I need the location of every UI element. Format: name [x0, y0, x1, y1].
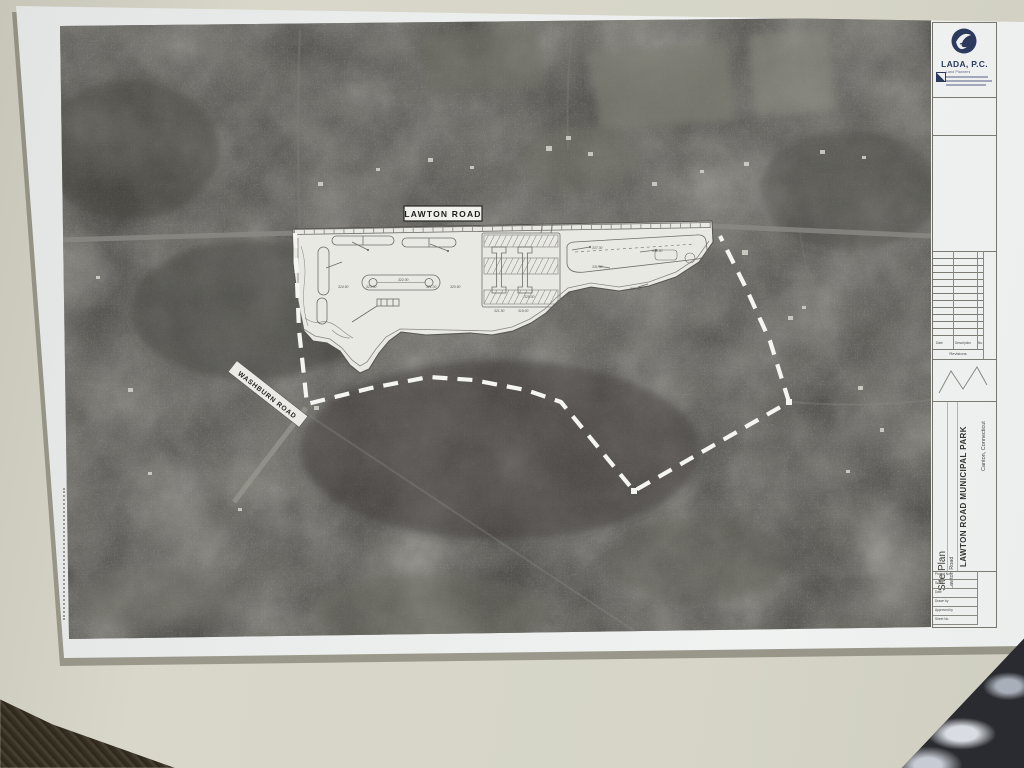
carpet-corner	[0, 664, 175, 768]
svg-text:334.50: 334.50	[652, 249, 662, 253]
info-scale: Scale	[933, 580, 977, 589]
svg-text:320.50: 320.50	[450, 285, 460, 289]
info-date: Date	[933, 589, 977, 598]
svg-text:331.00: 331.00	[592, 265, 602, 269]
svg-text:323.00: 323.00	[366, 285, 376, 289]
firm-name: LADA, P.C.	[933, 59, 996, 69]
photo-of-site-plan: { "scene": { "background_color": "#d6d5c…	[0, 0, 1024, 768]
margin-fine-print	[63, 488, 65, 620]
firm-address-line	[946, 80, 992, 82]
firm-square-icon	[936, 72, 946, 82]
lada-logo-icon	[950, 27, 978, 55]
svg-text:LAWTON ROAD: LAWTON ROAD	[404, 209, 481, 219]
title-block: LADA, P.C. Land Planners Date Descriptio…	[932, 22, 997, 628]
seal-signature-line	[937, 363, 991, 399]
info-drawn-by: Drawn by	[933, 598, 977, 607]
rev-col-no: No.	[978, 341, 983, 345]
info-approved-by: Approved by	[933, 607, 977, 616]
svg-text:337.00: 337.00	[592, 246, 602, 250]
rev-col-date: Date	[936, 341, 943, 345]
fabric-object	[894, 636, 1024, 768]
rev-col-description: Description	[955, 341, 971, 345]
svg-text:319.00: 319.00	[518, 309, 528, 313]
svg-text:321.00: 321.00	[426, 285, 436, 289]
project-name: LAWTON ROAD MUNICIPAL PARK	[959, 426, 968, 567]
info-project-no: Project No.	[933, 571, 977, 580]
firm-address-line	[946, 76, 988, 78]
svg-text:324.50: 324.50	[338, 285, 348, 289]
project-location: Canton, Connecticut	[981, 421, 987, 471]
svg-text:322.00: 322.00	[398, 278, 408, 282]
firm-address-line	[946, 84, 986, 86]
revisions-label: Revisions	[933, 351, 983, 356]
svg-text:325.00: 325.00	[524, 295, 534, 299]
info-sheet-no: Sheet No.	[933, 616, 977, 625]
svg-text:321.50: 321.50	[494, 309, 504, 313]
svg-text:327.00: 327.00	[630, 287, 640, 291]
lawton-road-label: LAWTON ROAD	[404, 206, 482, 221]
firm-tagline: Land Planners	[946, 70, 970, 74]
